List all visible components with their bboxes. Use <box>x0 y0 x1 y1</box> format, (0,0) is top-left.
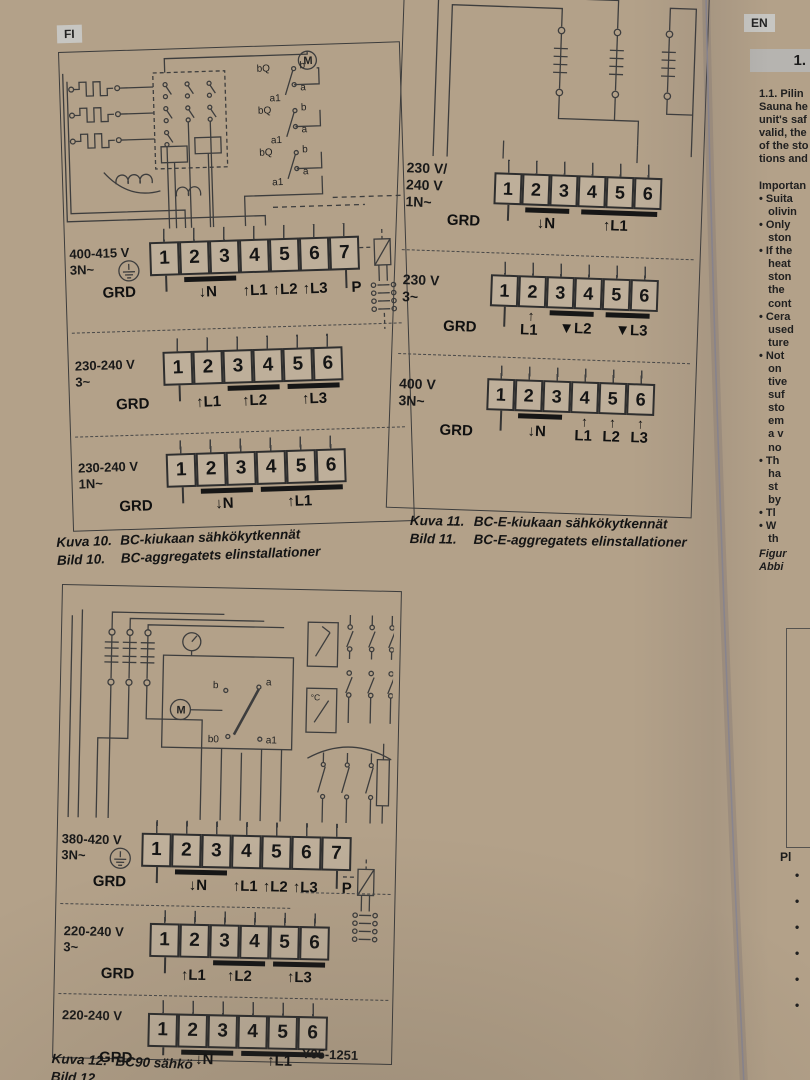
ground-wire <box>156 867 158 883</box>
terminal-strip: 123456 <box>162 346 343 386</box>
terminal: 3 <box>209 239 240 274</box>
en-text-line: • Tl <box>759 507 810 520</box>
en-text-line: • W <box>759 520 810 533</box>
contact-a-label: a <box>301 124 307 135</box>
ground-label: GRD <box>439 423 473 439</box>
terminal: 6 <box>633 177 662 210</box>
terminal: 2 <box>518 275 547 308</box>
terminal: 6 <box>299 926 330 961</box>
wire-label-l1: ↑L1 <box>602 218 628 234</box>
en-text-line: • Cera <box>759 311 810 324</box>
wire-label-p: P <box>351 280 361 295</box>
terminal: 6 <box>626 383 655 416</box>
wire-label-l2: ↑L2 <box>272 282 297 298</box>
caption-fi-text: BC90 sähkö <box>115 1053 193 1074</box>
terminal: 3 <box>226 451 257 486</box>
bridge-4-5-6 <box>581 209 657 217</box>
bridge-2-3 <box>184 276 236 283</box>
terminal: 4 <box>231 835 262 870</box>
terminal: 5 <box>286 449 317 484</box>
bc90-schematic: M b a b0 a1 °C <box>60 587 395 824</box>
wire-label-n: ↓N <box>198 284 217 300</box>
terminal: 2 <box>521 173 550 206</box>
en-text-line: cont <box>759 298 810 311</box>
terminal-strip: 123456 <box>490 274 659 312</box>
terminal: 4 <box>239 925 270 960</box>
terminal: 5 <box>261 835 292 870</box>
en-text-line: valid, the <box>759 127 810 140</box>
contact-a1-label: a1 <box>266 735 278 746</box>
p-wire <box>336 871 338 889</box>
coil-label: bQ <box>259 147 273 158</box>
en-text-line: st <box>759 481 810 494</box>
terminal: 1 <box>490 274 519 307</box>
terminal: 2 <box>179 240 210 275</box>
voltage-label: 230-240 V <box>78 459 138 476</box>
bullet: • <box>795 972 799 998</box>
terminal: 2 <box>196 452 227 487</box>
figure-11-wiring-diagram: 230 V/ 240 V 1N~ 123456 GRD ↓N ↑L1 230 V… <box>386 0 710 518</box>
contact-a-label: a <box>300 82 306 93</box>
terminal: 6 <box>630 279 659 312</box>
terminal: 4 <box>239 238 270 273</box>
en-text-line: suf <box>759 389 810 402</box>
ground-label: GRD <box>93 874 127 890</box>
wire-label-n: ↓N <box>537 216 556 232</box>
terminal: 4 <box>570 381 599 414</box>
bridge-3-4 <box>213 960 265 966</box>
terminal-row-230-240v-3ph: 230-240 V 3~ 123456 GRD ↑L1 ↑L2 ↑L3 <box>68 330 411 431</box>
terminal: 4 <box>574 277 603 310</box>
p-wire <box>345 270 347 288</box>
wire-label-l2: ▼L2 <box>559 321 592 337</box>
bridge-3-4 <box>228 384 280 391</box>
terminal: 4 <box>252 348 283 383</box>
ground-label: GRD <box>447 213 481 229</box>
terminal: 4 <box>237 1015 268 1050</box>
terminal: 1 <box>149 923 180 958</box>
terminal-row-230-240v-1n: 230 V/ 240 V 1N~ 123456 GRD ↓N ↑L1 <box>396 155 703 256</box>
terminal-row-400-415v: 400-415 V 3N~ 1234567 GRD ↓N ↑L1 ↑L2 ↑L3… <box>65 220 408 321</box>
voltage-label2: 240 V <box>406 176 447 194</box>
terminal: 5 <box>269 925 300 960</box>
wire-label-l3: ↑L3 <box>302 391 327 407</box>
en-text-line: • Not <box>759 350 810 363</box>
figure-12-wiring-diagram: M b a b0 a1 °C 380-420 V 3N~ <box>52 584 402 1065</box>
terminal-strip: 123456 <box>166 448 347 488</box>
terminal: 3 <box>546 276 575 309</box>
terminal-strip: 123456 <box>147 1013 328 1051</box>
ground-label: GRD <box>101 966 135 982</box>
ground-label: GRD <box>116 396 150 412</box>
caption-fi-label: Kuva 11. <box>410 512 474 531</box>
bridge-2-3 <box>175 869 227 875</box>
terminal: 1 <box>162 351 193 386</box>
terminal-strip: 123456 <box>493 172 662 210</box>
en-text-line: 1.1. Pilin <box>759 88 810 101</box>
en-figure-frame <box>786 628 810 848</box>
ground-wire <box>503 307 505 327</box>
wire-label-l1: ↑L1 <box>196 394 221 410</box>
bullet: • <box>795 946 799 972</box>
system-label: 3~ <box>402 288 439 306</box>
caption-sv-label: Bild 10. <box>57 550 122 570</box>
en-text-line: Importan <box>759 180 810 193</box>
contact-a1-label: a1 <box>272 177 284 188</box>
terminal-row-220-240v-3ph: 220-240 V 3~ 123456 GRD ↑L1 ↑L2 ↑L3 <box>54 907 394 998</box>
wire-label-l1: ↑L1 <box>181 968 206 984</box>
bridge-2-3 <box>201 487 253 494</box>
en-text-line <box>759 167 810 180</box>
en-text-line: ston <box>759 271 810 284</box>
terminal: 6 <box>299 237 330 272</box>
system-label: 3N~ <box>398 392 435 410</box>
en-text-line: • Only <box>759 219 810 232</box>
earth-ground-icon <box>107 842 134 873</box>
terminal: 5 <box>269 238 300 273</box>
en-text-line: ston <box>759 232 810 245</box>
wire-label-l1: L1 <box>574 428 592 444</box>
en-text-line: no <box>759 442 810 455</box>
terminal: 1 <box>493 172 522 205</box>
terminal: 4 <box>256 450 287 485</box>
terminal-row-230-240v-1n: 230-240 V 1N~ 123456 GRD ↓N ↑L1 <box>71 432 414 529</box>
voltage-label: 400 V <box>399 375 436 393</box>
terminal-row-380-420v: 380-420 V 3N~ 1234567 GRD ↓N ↑L1 ↑L2 ↑L3… <box>56 817 396 908</box>
ground-wire <box>500 411 502 431</box>
terminal: 6 <box>291 836 322 871</box>
system-label: 1N~ <box>78 474 138 491</box>
terminal: 1 <box>166 453 197 488</box>
caption-sv-label: Bild 12. <box>50 1068 115 1080</box>
en-text-line: tions and <box>759 153 810 166</box>
arrow-down-icon: ▼ <box>615 322 630 340</box>
terminal: 5 <box>605 176 634 209</box>
terminal: 3 <box>207 1014 238 1049</box>
bc-contactor-schematic: M bQ b a a1 bQ b a a1 bQ b a a1 <box>60 43 401 231</box>
contact-b-label: b <box>301 102 307 113</box>
terminal: 7 <box>321 836 352 871</box>
terminal-strip: 1234567 <box>149 236 360 277</box>
contact-a1-label: a1 <box>269 93 281 104</box>
en-text-line: • If the <box>759 245 810 258</box>
terminal: 3 <box>222 349 253 384</box>
en-text-line: sto <box>759 402 810 415</box>
terminal-strip: 1234567 <box>141 833 352 871</box>
en-text-line: a v <box>759 428 810 441</box>
bridge-5-6 <box>606 312 650 319</box>
terminal: 6 <box>312 346 343 381</box>
en-text-line: by <box>759 494 810 507</box>
contact-b0-label: b0 <box>208 734 220 745</box>
system-label: 3~ <box>75 372 135 389</box>
caption-fi-label: Kuva 10. <box>56 532 121 552</box>
en-text-line: tive <box>759 376 810 389</box>
terminal: 5 <box>282 347 313 382</box>
terminal: 6 <box>316 448 347 483</box>
earth-ground-icon <box>115 254 142 285</box>
ground-wire <box>165 276 167 292</box>
system-label: 1N~ <box>405 193 446 211</box>
en-section-heading-bar: 1. <box>750 49 810 72</box>
terminal: 1 <box>149 241 180 276</box>
terminal-row-400v-3n: 400 V 3N~ 123456 GRD ↓N ↑ L1 ↑ L2 ↑ L3 <box>388 361 695 472</box>
wire-label-l2: ↑L2 <box>227 969 252 985</box>
terminal: 3 <box>209 924 240 959</box>
wire-label-n: ↓N <box>189 878 208 893</box>
photo-of-manual-page: FI <box>0 0 810 1080</box>
voltage-label: 230-240 V <box>75 357 135 374</box>
en-text-line: of the sto <box>759 140 810 153</box>
wire-label-l1: ↑L1 <box>242 283 267 299</box>
bridge-2-3 <box>518 413 562 420</box>
system-label: 3~ <box>63 939 123 956</box>
terminal: 2 <box>192 350 223 385</box>
bullet: • <box>795 920 799 946</box>
thermostat-temp-label: °C <box>311 692 321 702</box>
wire-label-l3: ↑L3 <box>287 970 312 986</box>
bridge-5-6 <box>273 962 325 968</box>
arrow-down-icon: ▼ <box>559 320 574 338</box>
en-text-line: heat <box>759 258 810 271</box>
en-text-line: th <box>759 533 810 546</box>
ground-wire <box>507 205 509 221</box>
terminal: 3 <box>201 834 232 869</box>
en-text-line: on <box>759 363 810 376</box>
ground-wire <box>182 487 184 503</box>
voltage-label: 230 V <box>402 271 439 289</box>
contact-b-label: b <box>213 680 219 691</box>
terminal: 3 <box>549 174 578 207</box>
figure-10-wiring-diagram: M bQ b a a1 bQ b a a1 bQ b a a1 <box>58 41 415 532</box>
bullet: • <box>795 868 799 894</box>
en-text-line: ha <box>759 468 810 481</box>
bullet: • <box>795 894 799 920</box>
wire-label-l1: ↑L1 <box>233 879 258 895</box>
en-text-line: ture <box>759 337 810 350</box>
bc-e-heating-elements-schematic <box>407 0 705 165</box>
terminal: 2 <box>171 833 202 868</box>
voltage-label: 220-240 V <box>64 923 124 940</box>
voltage-label: 220-240 V <box>62 1007 122 1024</box>
wire-label-l2: ↑L2 <box>242 393 267 409</box>
en-text-line: the <box>759 284 810 297</box>
terminal: 2 <box>177 1014 208 1049</box>
en-text-line: olivin <box>759 206 810 219</box>
en-figure-ref-1: Figur <box>759 548 787 560</box>
bridge-4-5-6 <box>261 484 343 492</box>
ground-label: GRD <box>443 319 477 335</box>
wire-label-l3: ↑L3 <box>302 281 327 297</box>
ground-label: GRD <box>119 498 153 514</box>
caption-sv-label: Bild 11. <box>409 530 473 549</box>
contact-a1-label: a1 <box>271 135 283 146</box>
coil-label: bQ <box>258 105 272 116</box>
figure-11-caption: Kuva 11.BC-E-kiukaan sähkökytkennät Bild… <box>409 512 719 553</box>
wire-label-n: ↓N <box>527 424 546 440</box>
en-text-line: used <box>759 324 810 337</box>
en-page-text-column: 1.1. PilinSauna heunit's safvalid, theof… <box>759 88 810 546</box>
terminal: 2 <box>179 924 210 959</box>
terminal-strip: 123456 <box>486 378 655 416</box>
contact-a-label: a <box>303 166 309 177</box>
ground-wire <box>164 957 166 973</box>
wire-label-l1: L1 <box>520 322 538 338</box>
coil-label: bQ <box>256 63 270 74</box>
en-language-badge: EN <box>744 14 775 32</box>
wire-label-l2: L2 <box>602 429 620 445</box>
bridge-2-3 <box>525 207 569 214</box>
terminal: 7 <box>329 236 360 271</box>
bridge-5-6 <box>288 382 340 389</box>
terminal: 2 <box>514 379 543 412</box>
wire-label-l1: ↑L1 <box>287 493 312 509</box>
caption-sv-text: BC-E-aggregatets elinstallationer <box>473 531 686 552</box>
en-text-line: • Th <box>759 455 810 468</box>
bullet: • <box>795 998 799 1024</box>
voltage-label: 230 V/ <box>406 159 447 177</box>
terminal-row-230v-3ph: 230 V 3~ 123456 GRD ↑ L1 ▼L2 ▼L3 <box>392 257 699 362</box>
terminal: 1 <box>141 833 172 868</box>
en-text-line: unit's saf <box>759 114 810 127</box>
contact-b-label: b <box>302 144 308 155</box>
en-text-line: em <box>759 415 810 428</box>
en-note-heading: Pl <box>780 850 791 864</box>
motor-label: M <box>176 704 185 716</box>
terminal: 5 <box>267 1015 298 1050</box>
fi-language-badge: FI <box>57 25 82 44</box>
terminal: 1 <box>147 1013 178 1048</box>
ground-wire <box>179 385 181 401</box>
terminal: 3 <box>542 380 571 413</box>
wire-label-l2: ↑L2 <box>263 879 288 895</box>
wire-label-n: ↓N <box>215 496 234 512</box>
ground-label: GRD <box>102 285 136 301</box>
en-text-line: Sauna he <box>759 101 810 114</box>
terminal-strip: 123456 <box>149 923 330 961</box>
contact-a-label: a <box>266 677 272 688</box>
en-text-line: • Suita <box>759 193 810 206</box>
terminal: 4 <box>577 175 606 208</box>
terminal: 1 <box>486 378 515 411</box>
bridge-3-4 <box>550 310 594 317</box>
terminal: 5 <box>602 278 631 311</box>
contact-b-label: b <box>299 60 305 71</box>
wire-label-l3: ▼L3 <box>615 323 648 339</box>
en-margin-bullets: •••••• <box>795 868 799 1024</box>
wire-label-l3: L3 <box>630 430 648 446</box>
en-figure-ref-2: Abbi <box>759 561 783 573</box>
terminal: 5 <box>598 382 627 415</box>
